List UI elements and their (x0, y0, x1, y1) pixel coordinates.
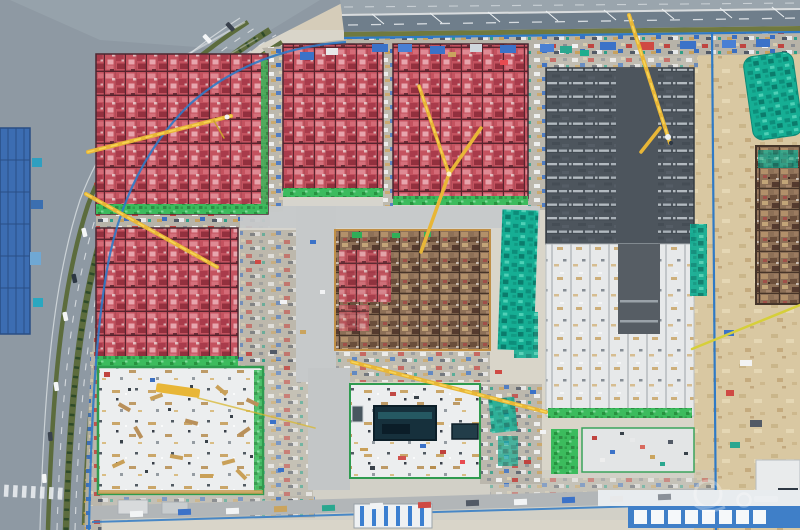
aerial-photo-construction-site: Aerial drone photo of a large constructi… (0, 0, 800, 530)
block-dark-slab (546, 68, 694, 244)
block-timber-f (335, 230, 490, 350)
slab-centre-column (616, 68, 658, 244)
block-white-g (98, 367, 263, 494)
block-red-e (96, 228, 238, 366)
block-red-a (96, 54, 268, 214)
safety-net-green (254, 370, 262, 491)
safety-net-green (96, 356, 238, 366)
photo-canvas (0, 0, 800, 530)
highway-top (340, 0, 800, 37)
timber-block-right (756, 146, 800, 304)
safety-net-green (393, 196, 528, 205)
block-white-h (546, 244, 694, 418)
safety-net-green (261, 60, 268, 206)
block-red-c (393, 44, 528, 205)
green-verge (551, 429, 578, 474)
block-red-b (283, 44, 383, 197)
safety-net-green (548, 408, 692, 418)
excavation-pit (374, 406, 436, 440)
red-formwork-patch (339, 250, 391, 302)
pad-j (551, 428, 694, 474)
excavation-pit-small (452, 424, 478, 439)
block-pit-i (350, 384, 480, 478)
safety-net-green (283, 188, 383, 197)
